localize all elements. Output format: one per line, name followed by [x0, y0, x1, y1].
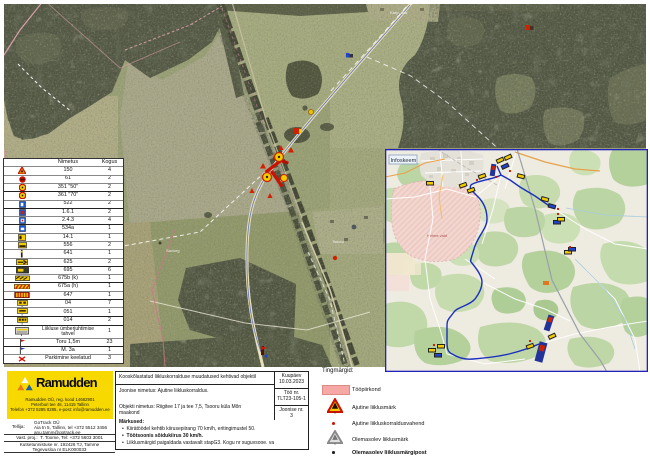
svg-text:Saviorg: Saviorg	[166, 248, 180, 253]
svg-text:Infoskeem: Infoskeem	[391, 158, 417, 164]
svg-text:Karjamaa: Karjamaa	[390, 10, 408, 15]
svg-text:Tsooru: Tsooru	[332, 239, 344, 244]
